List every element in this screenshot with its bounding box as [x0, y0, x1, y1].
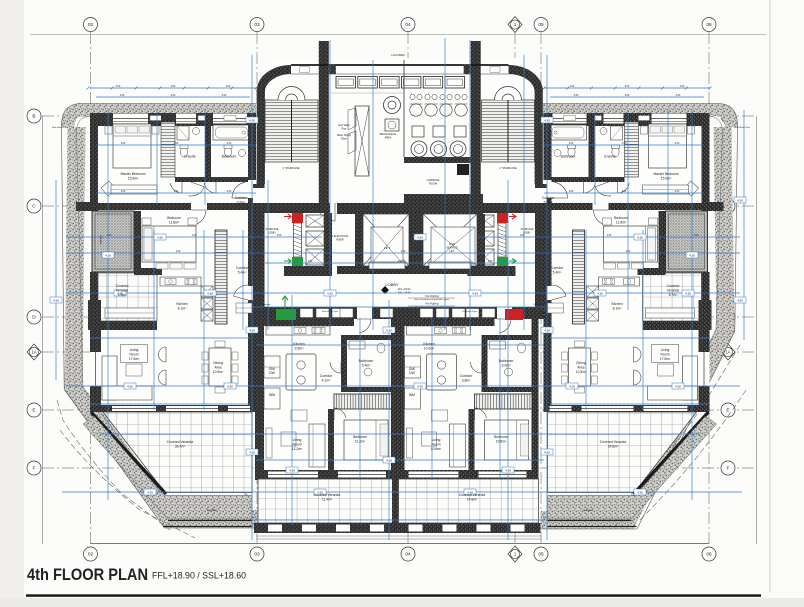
svg-text:SERVICE: SERVICE — [446, 246, 458, 250]
svg-text:11.2m²: 11.2m² — [355, 440, 366, 444]
svg-text:Bedroom: Bedroom — [494, 435, 508, 439]
svg-text:Area: Area — [214, 366, 221, 370]
svg-text:15.9m²: 15.9m² — [661, 177, 672, 181]
svg-text:STAIRCASE: STAIRCASE — [266, 228, 279, 231]
svg-text:Corridor: Corridor — [460, 374, 473, 378]
svg-text:Pipes: Pipes — [263, 307, 269, 309]
svg-text:Covered Veranda: Covered Veranda — [459, 493, 486, 497]
svg-text:Garden: Garden — [207, 508, 217, 512]
svg-text:Fire Fighting: Fire Fighting — [425, 303, 439, 306]
svg-text:Covered Veranda: Covered Veranda — [167, 440, 194, 444]
svg-text:4.50: 4.50 — [417, 385, 423, 389]
svg-text:4.50: 4.50 — [625, 86, 630, 88]
svg-text:4.50: 4.50 — [171, 95, 176, 97]
svg-text:Ensuite: Ensuite — [184, 155, 195, 159]
svg-text:4.50: 4.50 — [116, 86, 121, 88]
svg-text:FFL+18.90 / SSL+18.60: FFL+18.90 / SSL+18.60 — [152, 571, 246, 582]
svg-text:4.50: 4.50 — [520, 235, 525, 237]
svg-text:RISER: RISER — [336, 239, 344, 242]
svg-text:4.50: 4.50 — [569, 143, 574, 145]
svg-text:4.50: 4.50 — [176, 251, 181, 253]
svg-text:Veranda: Veranda — [667, 289, 680, 293]
svg-text:4.50: 4.50 — [637, 491, 643, 495]
svg-text:4.50: 4.50 — [174, 191, 179, 193]
svg-text:10.9m²: 10.9m² — [213, 370, 224, 374]
svg-text:Room: Room — [292, 443, 301, 447]
svg-text:WM: WM — [269, 393, 275, 397]
svg-text:4th FLOOR PLAN: 4th FLOOR PLAN — [27, 565, 148, 584]
svg-text:5.9m²: 5.9m² — [118, 293, 128, 297]
svg-text:4.50: 4.50 — [192, 235, 197, 237]
svg-text:24.8m²: 24.8m² — [608, 445, 619, 449]
svg-text:Master Bedroom: Master Bedroom — [653, 172, 678, 176]
svg-text:4.50: 4.50 — [675, 385, 681, 389]
svg-text:4.50: 4.50 — [505, 469, 511, 473]
svg-text:B: B — [32, 114, 35, 120]
svg-text:15.9m²: 15.9m² — [128, 177, 139, 181]
svg-text:4.50: 4.50 — [417, 236, 423, 240]
svg-text:4.50: 4.50 — [157, 236, 163, 240]
svg-text:MECHANICAL: MECHANICAL — [379, 132, 397, 136]
svg-text:Pipes: Pipes — [535, 307, 541, 309]
svg-text:9.5m²: 9.5m² — [295, 347, 305, 351]
svg-text:D: D — [32, 315, 36, 321]
svg-text:Bathroom: Bathroom — [499, 359, 514, 363]
svg-text:Covered: Covered — [116, 284, 129, 288]
svg-text:4.50: 4.50 — [737, 299, 743, 303]
svg-text:Rain Water Pipe: Rain Water Pipe — [734, 126, 751, 129]
svg-text:4.50: 4.50 — [127, 385, 133, 389]
svg-text:05: 05 — [538, 22, 544, 28]
svg-text:4.50: 4.50 — [544, 451, 550, 455]
svg-text:FireN: FireN — [449, 242, 455, 246]
svg-text:Drainage: Drainage — [262, 303, 272, 306]
svg-text:4.50: 4.50 — [625, 95, 630, 97]
svg-text:6.0m²: 6.0m² — [502, 364, 512, 368]
svg-text:Area: Area — [577, 366, 584, 370]
svg-text:4.50: 4.50 — [622, 191, 627, 193]
svg-text:4.50: 4.50 — [675, 191, 680, 193]
svg-text:4.50: 4.50 — [401, 251, 406, 253]
svg-text:4.50: 4.50 — [121, 191, 126, 193]
svg-text:17.5m²: 17.5m² — [129, 357, 140, 361]
svg-text:2' STAIRCASE: 2' STAIRCASE — [499, 166, 516, 170]
svg-text:Veranda: Veranda — [116, 289, 129, 293]
svg-text:4.50: 4.50 — [488, 261, 493, 263]
svg-text:4.50: 4.50 — [249, 329, 255, 333]
svg-text:4.50: 4.50 — [737, 199, 743, 203]
svg-text:10.8m²: 10.8m² — [431, 447, 442, 451]
svg-text:Covered: Covered — [667, 284, 680, 288]
svg-text:5.5m²: 5.5m² — [544, 201, 554, 205]
svg-text:4.50: 4.50 — [675, 143, 680, 145]
svg-text:Living: Living — [432, 438, 441, 442]
svg-text:4.50: 4.50 — [685, 292, 691, 296]
svg-text:Room: Room — [431, 443, 440, 447]
svg-text:5.4m²: 5.4m² — [238, 271, 248, 275]
svg-text:4.50: 4.50 — [289, 469, 295, 473]
svg-text:4.50: 4.50 — [174, 143, 179, 145]
svg-text:LOBBY: LOBBY — [385, 282, 399, 287]
svg-text:Corridor: Corridor — [551, 266, 564, 270]
svg-text:Drainage: Drainage — [534, 303, 544, 306]
svg-text:LIFT: LIFT — [449, 249, 455, 253]
svg-text:Living: Living — [130, 348, 139, 352]
svg-text:4.50: 4.50 — [308, 261, 313, 263]
svg-text:4.50: 4.50 — [398, 261, 403, 263]
svg-text:4.50: 4.50 — [626, 251, 631, 253]
svg-text:10.0m²: 10.0m² — [424, 347, 435, 351]
svg-text:Room: Room — [129, 353, 138, 357]
svg-text:4.50: 4.50 — [249, 119, 255, 123]
svg-text:Ensuite: Ensuite — [604, 155, 615, 159]
svg-text:4.50: 4.50 — [574, 95, 579, 97]
svg-text:4.50: 4.50 — [227, 191, 232, 193]
svg-text:Master Bedroom: Master Bedroom — [120, 172, 145, 176]
svg-text:Bedroom: Bedroom — [614, 216, 628, 220]
svg-text:14.8m²: 14.8m² — [467, 498, 478, 502]
svg-text:4.50: 4.50 — [622, 143, 627, 145]
svg-text:Corridor: Corridor — [542, 196, 555, 200]
svg-text:4.50: 4.50 — [386, 459, 392, 463]
svg-text:Dining: Dining — [576, 361, 586, 365]
svg-text:06: 06 — [706, 552, 712, 558]
svg-text:3.8m²: 3.8m² — [462, 379, 472, 383]
svg-text:Dining: Dining — [213, 361, 223, 365]
svg-text:1A: 1A — [31, 350, 36, 355]
svg-text:Bedroom: Bedroom — [167, 216, 181, 220]
svg-text:GARBAGE: GARBAGE — [427, 178, 440, 182]
svg-text:4.50: 4.50 — [227, 385, 233, 389]
svg-text:Garden: Garden — [583, 508, 593, 512]
svg-text:DW: DW — [409, 371, 415, 375]
svg-text:Pipe: Pipe — [342, 128, 347, 131]
svg-text:C: C — [32, 204, 36, 210]
svg-text:4.50: 4.50 — [607, 235, 612, 237]
svg-text:Covered Veranda: Covered Veranda — [600, 440, 627, 444]
svg-text:E: E — [32, 408, 35, 414]
svg-text:4.50: 4.50 — [544, 329, 550, 333]
svg-text:4.50: 4.50 — [676, 95, 681, 97]
svg-text:Bathroom: Bathroom — [222, 155, 237, 159]
svg-text:LOBBY: LOBBY — [268, 233, 276, 235]
svg-text:1A: 1A — [725, 350, 730, 355]
svg-text:05: 05 — [538, 552, 544, 558]
svg-text:8.1m²: 8.1m² — [178, 307, 188, 311]
svg-text:17.5m²: 17.5m² — [660, 357, 671, 361]
svg-text:5.4m²: 5.4m² — [362, 364, 372, 368]
svg-text:Corridor: Corridor — [236, 266, 249, 270]
svg-text:5.7m²: 5.7m² — [669, 293, 679, 297]
svg-text:Kitchen: Kitchen — [176, 302, 187, 306]
svg-text:LOBBY: LOBBY — [523, 233, 531, 235]
svg-text:4.1m²: 4.1m² — [322, 379, 332, 383]
svg-text:Kitchen: Kitchen — [423, 342, 434, 346]
svg-text:DW: DW — [269, 371, 275, 375]
svg-text:4.50: 4.50 — [689, 254, 695, 258]
svg-text:10.5m²: 10.5m² — [576, 370, 587, 374]
svg-text:12.2m²: 12.2m² — [292, 447, 303, 451]
svg-text:Corridor: Corridor — [320, 374, 333, 378]
svg-text:11.8m²: 11.8m² — [169, 221, 180, 225]
svg-text:Living: Living — [293, 438, 302, 442]
svg-text:4.50: 4.50 — [207, 292, 213, 296]
svg-text:Covered Veranda: Covered Veranda — [314, 493, 341, 497]
svg-text:Living: Living — [661, 348, 670, 352]
svg-text:Corridor: Corridor — [235, 196, 248, 200]
svg-text:AREA: AREA — [384, 136, 391, 140]
svg-text:11.8m²: 11.8m² — [616, 221, 627, 225]
svg-text:4.50: 4.50 — [53, 299, 59, 303]
svg-text:4.50: 4.50 — [386, 329, 392, 333]
svg-text:11.4m²: 11.4m² — [322, 498, 333, 502]
svg-text:4.50: 4.50 — [249, 451, 255, 455]
svg-text:06: 06 — [706, 22, 712, 28]
svg-text:03: 03 — [254, 22, 260, 28]
svg-text:4.50: 4.50 — [171, 86, 176, 88]
svg-text:4.50: 4.50 — [120, 95, 125, 97]
svg-text:LIFT: LIFT — [384, 246, 390, 250]
svg-text:03: 03 — [254, 552, 260, 558]
svg-text:4.50: 4.50 — [680, 86, 685, 88]
svg-text:4.50: 4.50 — [107, 235, 112, 237]
svg-text:02: 02 — [88, 22, 94, 28]
svg-text:Kitchen: Kitchen — [611, 302, 622, 306]
svg-text:WM: WM — [409, 393, 415, 397]
svg-text:ROOM: ROOM — [429, 182, 437, 186]
svg-text:4.50: 4.50 — [569, 191, 574, 193]
svg-text:3.5m²: 3.5m² — [237, 201, 247, 205]
svg-text:4.50: 4.50 — [147, 491, 153, 495]
svg-text:4.50: 4.50 — [570, 86, 575, 88]
svg-text:Rain Water Pipe: Rain Water Pipe — [322, 310, 339, 313]
svg-text:Garden: Garden — [99, 235, 103, 245]
svg-text:8.1m²: 8.1m² — [613, 307, 623, 311]
svg-text:Bedroom: Bedroom — [353, 435, 367, 439]
svg-text:4.50: 4.50 — [226, 86, 231, 88]
svg-text:5.4m²: 5.4m² — [553, 271, 563, 275]
svg-text:4.50: 4.50 — [472, 292, 478, 296]
svg-text:10.5m²: 10.5m² — [496, 440, 507, 444]
svg-text:4.50: 4.50 — [121, 143, 126, 145]
svg-text:E: E — [726, 408, 729, 414]
svg-text:4.50: 4.50 — [597, 292, 603, 296]
svg-text:4.50: 4.50 — [327, 292, 333, 296]
svg-text:4.50: 4.50 — [105, 254, 111, 258]
svg-text:Room: Room — [660, 353, 669, 357]
svg-text:LOUVRES: LOUVRES — [391, 53, 405, 57]
svg-text:F: F — [727, 466, 730, 472]
svg-text:4.50: 4.50 — [569, 385, 575, 389]
svg-text:4.50: 4.50 — [277, 235, 282, 237]
svg-text:Rain Water Pipe: Rain Water Pipe — [52, 126, 69, 129]
svg-text:F: F — [33, 466, 36, 472]
svg-text:4.50: 4.50 — [637, 236, 643, 240]
svg-text:02: 02 — [88, 552, 94, 558]
svg-text:Pipes: Pipes — [341, 138, 348, 141]
svg-text:4.50: 4.50 — [694, 235, 699, 237]
svg-text:Bathroom: Bathroom — [561, 155, 576, 159]
svg-text:STAIRCASE: STAIRCASE — [521, 228, 534, 231]
svg-text:4.50: 4.50 — [222, 95, 227, 97]
svg-text:4.50: 4.50 — [227, 143, 232, 145]
svg-text:4.50: 4.50 — [544, 119, 550, 123]
svg-text:Bathroom: Bathroom — [359, 359, 374, 363]
svg-text:2' STAIRCASE: 2' STAIRCASE — [282, 166, 299, 170]
svg-text:Fire Fighting: Fire Fighting — [425, 295, 439, 298]
svg-text:04: 04 — [405, 22, 411, 28]
svg-text:36.4m²: 36.4m² — [175, 445, 186, 449]
svg-text:04: 04 — [405, 552, 411, 558]
svg-text:Kitchen: Kitchen — [293, 342, 304, 346]
svg-text:Drainage Pipes: Drainage Pipes — [463, 310, 479, 313]
